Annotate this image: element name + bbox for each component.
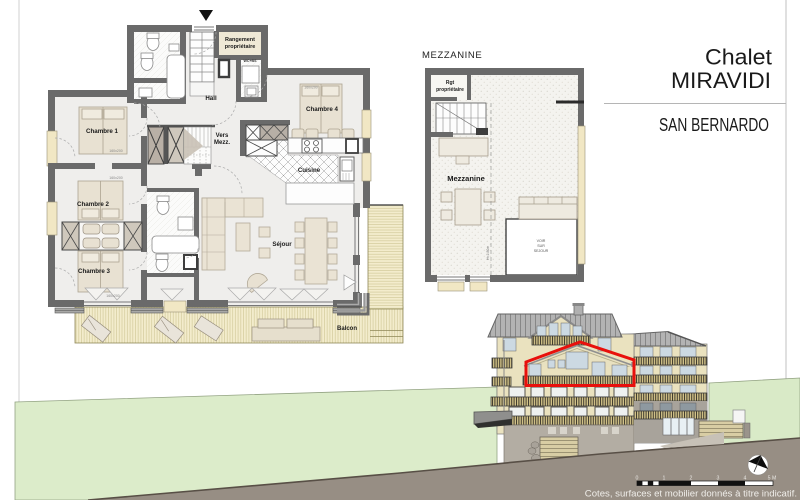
svg-text:Cotes, surfaces et mobilier do: Cotes, surfaces et mobilier donnés à tit… (585, 489, 797, 500)
svg-text:SUR: SUR (537, 244, 545, 248)
svg-text:Chambre 1: Chambre 1 (86, 128, 119, 135)
svg-text:4: 4 (744, 476, 747, 482)
svg-text:3: 3 (717, 476, 720, 482)
svg-text:SAN BERNARDO: SAN BERNARDO (659, 115, 769, 135)
svg-text:SEJOUR: SEJOUR (534, 249, 549, 253)
svg-text:Cuisine: Cuisine (298, 167, 321, 174)
svg-text:Chambre 2: Chambre 2 (77, 201, 110, 208)
svg-text:Rangement: Rangement (225, 37, 255, 43)
svg-text:Chambre 4: Chambre 4 (306, 106, 339, 113)
svg-text:VOIR: VOIR (537, 239, 546, 243)
svg-text:1: 1 (663, 476, 666, 482)
svg-text:160x200: 160x200 (109, 149, 122, 153)
svg-text:WC+BS: WC+BS (243, 59, 257, 63)
svg-text:Balcon: Balcon (337, 326, 357, 332)
svg-text:propriétaire: propriétaire (436, 87, 464, 93)
svg-text:Rgt: Rgt (446, 80, 455, 86)
svg-text:MIRAVIDI: MIRAVIDI (671, 68, 771, 93)
svg-text:Chalet: Chalet (705, 45, 772, 70)
svg-text:5 M: 5 M (768, 476, 777, 482)
svg-text:MEZZANINE: MEZZANINE (422, 50, 482, 61)
svg-text:Chambre 3: Chambre 3 (78, 268, 111, 275)
svg-text:Mezzanine: Mezzanine (447, 174, 485, 183)
svg-text:H<1.80m: H<1.80m (486, 246, 490, 260)
svg-text:160x200: 160x200 (109, 176, 122, 180)
svg-text:2: 2 (690, 476, 693, 482)
svg-text:160x200: 160x200 (304, 86, 317, 90)
svg-text:0: 0 (636, 476, 639, 482)
svg-text:Hall: Hall (205, 95, 217, 102)
svg-text:propriétaire: propriétaire (225, 44, 256, 50)
svg-text:Séjour: Séjour (272, 241, 292, 248)
svg-text:Vers: Vers (216, 133, 229, 139)
svg-text:Mezz.: Mezz. (214, 140, 230, 146)
svg-text:160x200: 160x200 (106, 294, 119, 298)
